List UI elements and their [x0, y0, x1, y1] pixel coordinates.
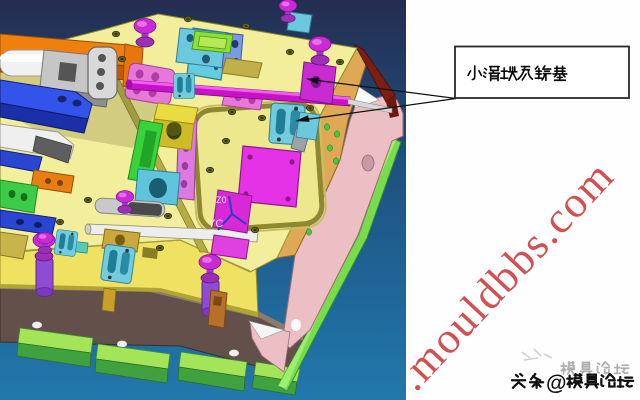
svg-text:Z0: Z0: [216, 195, 227, 205]
svg-text:YC: YC: [208, 218, 223, 230]
svg-text:@: @: [546, 372, 566, 395]
